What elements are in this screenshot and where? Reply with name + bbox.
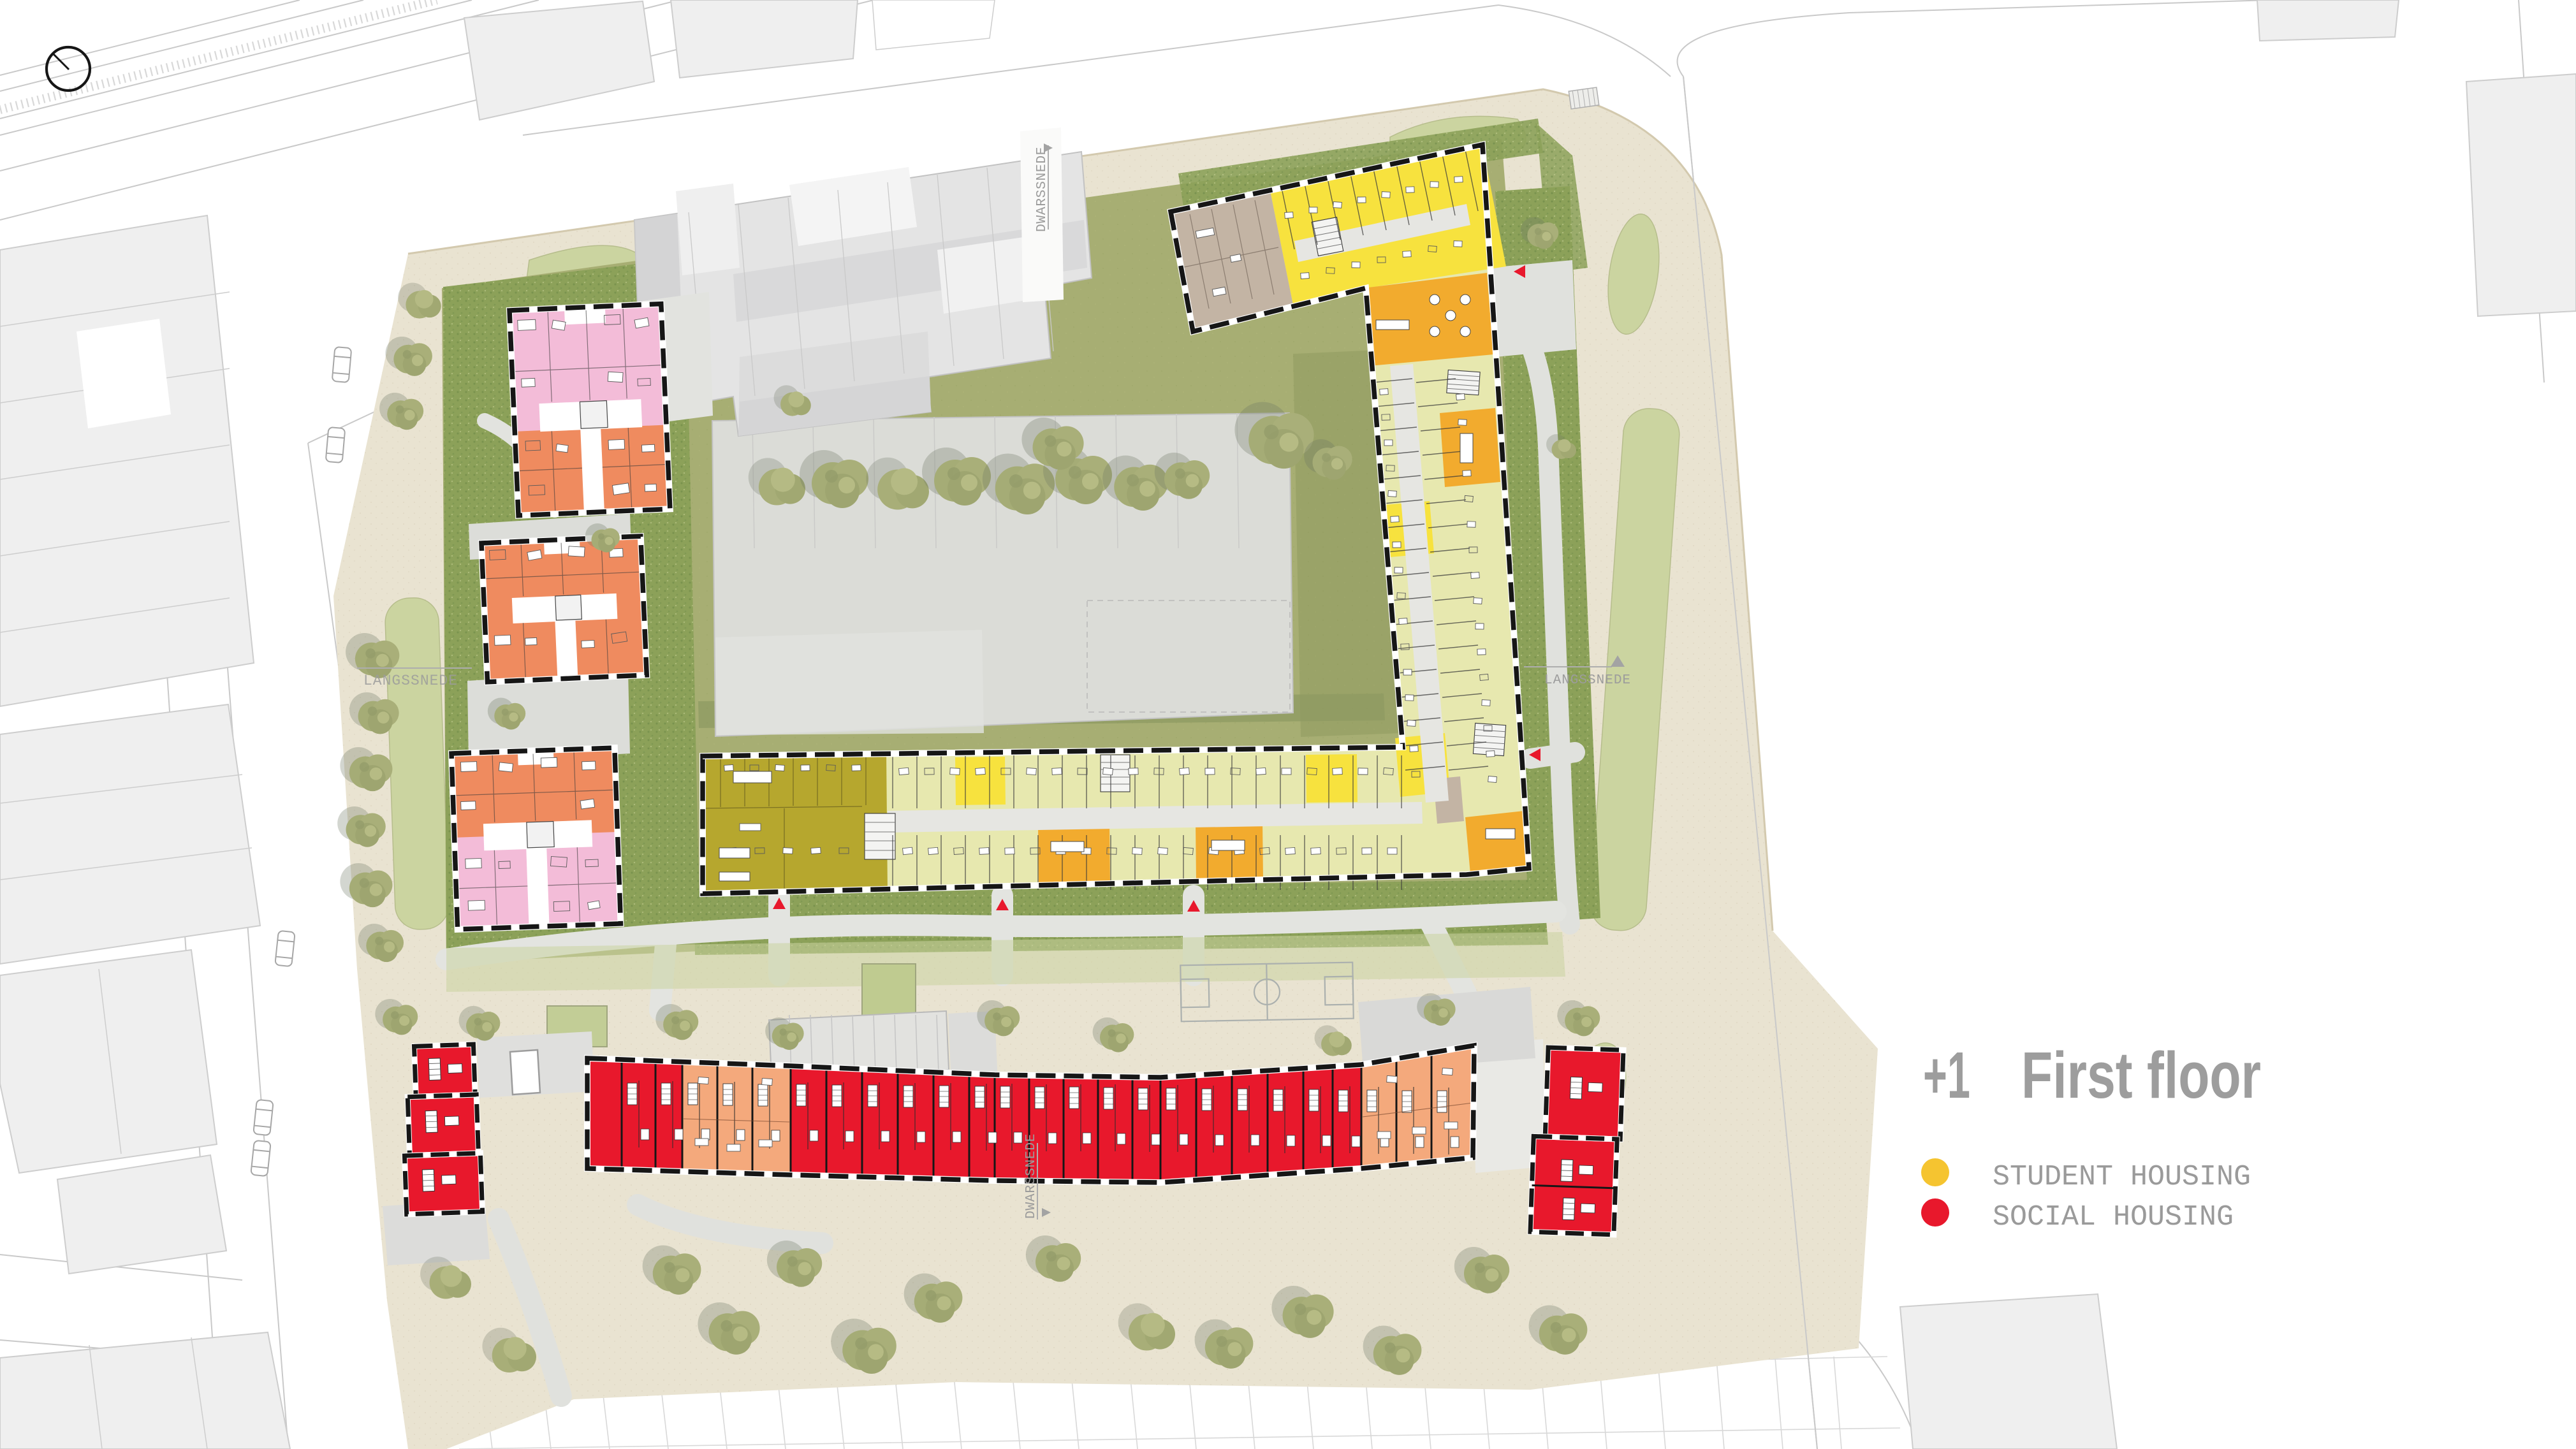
svg-text:STUDENT HOUSING: STUDENT HOUSING	[1993, 1161, 2251, 1193]
svg-text:LANGSSNEDE: LANGSSNEDE	[1544, 673, 1631, 688]
svg-text:LANGSSNEDE: LANGSSNEDE	[363, 673, 458, 689]
svg-text:SOCIAL HOUSING: SOCIAL HOUSING	[1993, 1201, 2234, 1234]
svg-text:+1: +1	[1923, 1038, 1970, 1112]
svg-text:First floor: First floor	[2021, 1038, 2261, 1112]
svg-text:DWARSSNEDE: DWARSSNEDE	[1023, 1133, 1039, 1219]
svg-text:DWARSSNEDE: DWARSSNEDE	[1034, 147, 1050, 232]
